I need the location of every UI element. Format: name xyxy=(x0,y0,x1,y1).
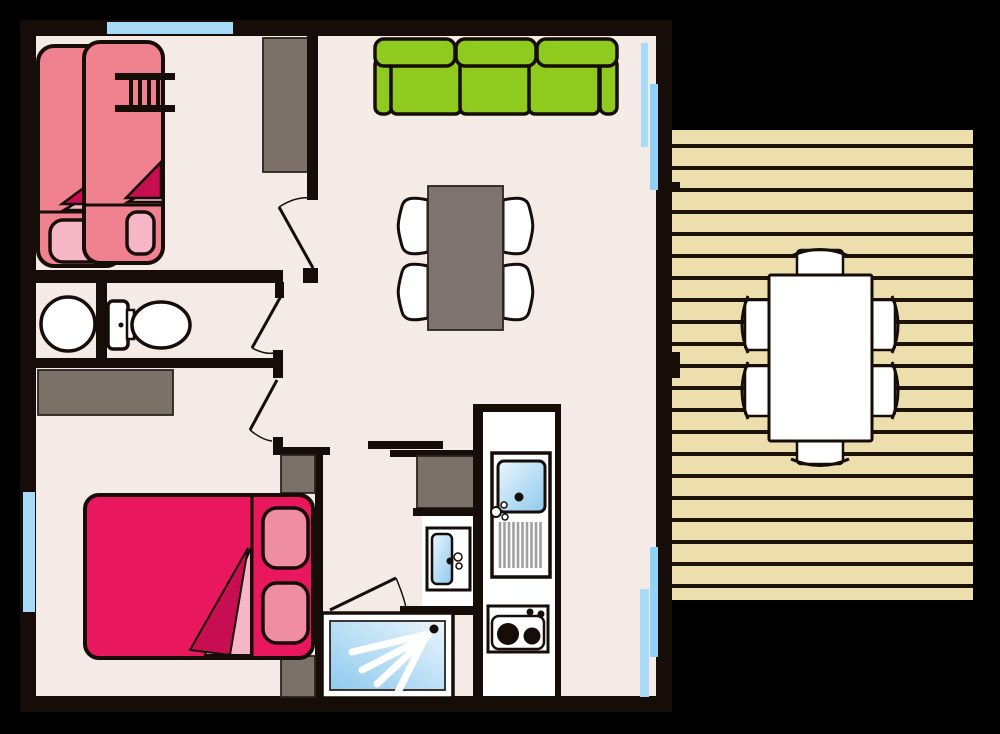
shower-head xyxy=(430,625,439,634)
wall-kitchen-right-line xyxy=(555,404,561,700)
wall-bedroom1-door-jamb xyxy=(303,268,318,283)
outdoor-chair-top xyxy=(791,250,849,278)
sliding-bay-lower-pane-2 xyxy=(640,589,649,697)
pillow xyxy=(127,212,154,254)
sofa-back-3 xyxy=(537,39,617,66)
dining-chair-right-2 xyxy=(503,264,533,320)
pillow-bottom xyxy=(263,583,308,643)
shower-tray xyxy=(322,613,453,698)
wall-bath-stub-top xyxy=(275,282,284,298)
sink-drain xyxy=(515,493,524,502)
nightstand-bottom xyxy=(281,656,315,697)
outdoor-table xyxy=(769,275,872,441)
ladder-rung xyxy=(147,74,151,112)
sofa-back-1 xyxy=(375,39,455,66)
basin-drain xyxy=(447,558,454,565)
wall-bath-stub-bottom xyxy=(273,350,283,378)
sliding-door-jamb-upper xyxy=(672,182,680,192)
wall-right xyxy=(656,20,672,712)
dining-chair-left-2 xyxy=(398,264,428,320)
round-washbasin xyxy=(41,297,95,351)
burner-large xyxy=(497,623,519,645)
ladder-rung xyxy=(156,74,160,112)
ladder-rail-top xyxy=(115,73,175,80)
toilet xyxy=(108,301,190,349)
sliding-bay-lower-pane-1 xyxy=(650,547,658,657)
pillow-top xyxy=(263,508,308,568)
toilet-button xyxy=(119,323,124,328)
wall-bedroom1-right xyxy=(307,35,318,200)
sliding-bay-upper-pane-2 xyxy=(650,84,658,190)
wall-kitchen-top xyxy=(473,404,560,412)
sink-with-drainer xyxy=(491,453,550,577)
window-left xyxy=(23,492,35,612)
sliding-bay-upper-pane-1 xyxy=(641,43,648,147)
wall-kitchen-left xyxy=(473,404,483,700)
dresser xyxy=(38,370,173,415)
sofa-back-2 xyxy=(456,39,536,66)
wardrobe xyxy=(263,38,310,172)
ladder-rung xyxy=(138,74,142,112)
floor-plan xyxy=(0,0,1000,734)
wall-bath-bottom xyxy=(20,358,283,368)
basin-tap-spout xyxy=(456,563,462,569)
stove-knob-1 xyxy=(527,609,534,616)
sink-tap-handle-2 xyxy=(502,514,508,520)
sink-tap-handle-1 xyxy=(501,502,507,508)
dining-chair-left-1 xyxy=(398,198,428,254)
double-bed xyxy=(85,495,313,658)
basin-tap-handle xyxy=(454,553,462,561)
wall-counter-bar-a xyxy=(368,441,443,449)
three-seat-sofa xyxy=(375,39,617,114)
ladder-rail-bottom xyxy=(115,105,175,112)
wall-counter-bar-c xyxy=(413,508,478,516)
nightstand-top xyxy=(281,455,315,493)
toilet-bowl xyxy=(132,302,190,348)
ladder-rung xyxy=(129,74,133,112)
stove-knob-2 xyxy=(538,611,545,618)
window-top xyxy=(107,22,233,34)
dining-table xyxy=(428,186,503,330)
sink-tap xyxy=(491,507,501,517)
wall-bedroom1-bottom xyxy=(20,270,283,283)
chair-seat xyxy=(797,250,843,277)
terrace-deck xyxy=(672,130,973,600)
burner-small xyxy=(524,628,541,645)
wall-bath-divider xyxy=(96,282,107,364)
kitchen xyxy=(473,404,561,700)
floor-plan-stage xyxy=(0,0,1000,734)
sliding-door-jamb-mid xyxy=(672,352,680,378)
washbasin xyxy=(427,528,470,590)
counter xyxy=(417,456,478,508)
dining-chair-right-1 xyxy=(503,198,533,254)
toilet-tank xyxy=(108,301,128,349)
two-burner-stove xyxy=(488,606,548,652)
